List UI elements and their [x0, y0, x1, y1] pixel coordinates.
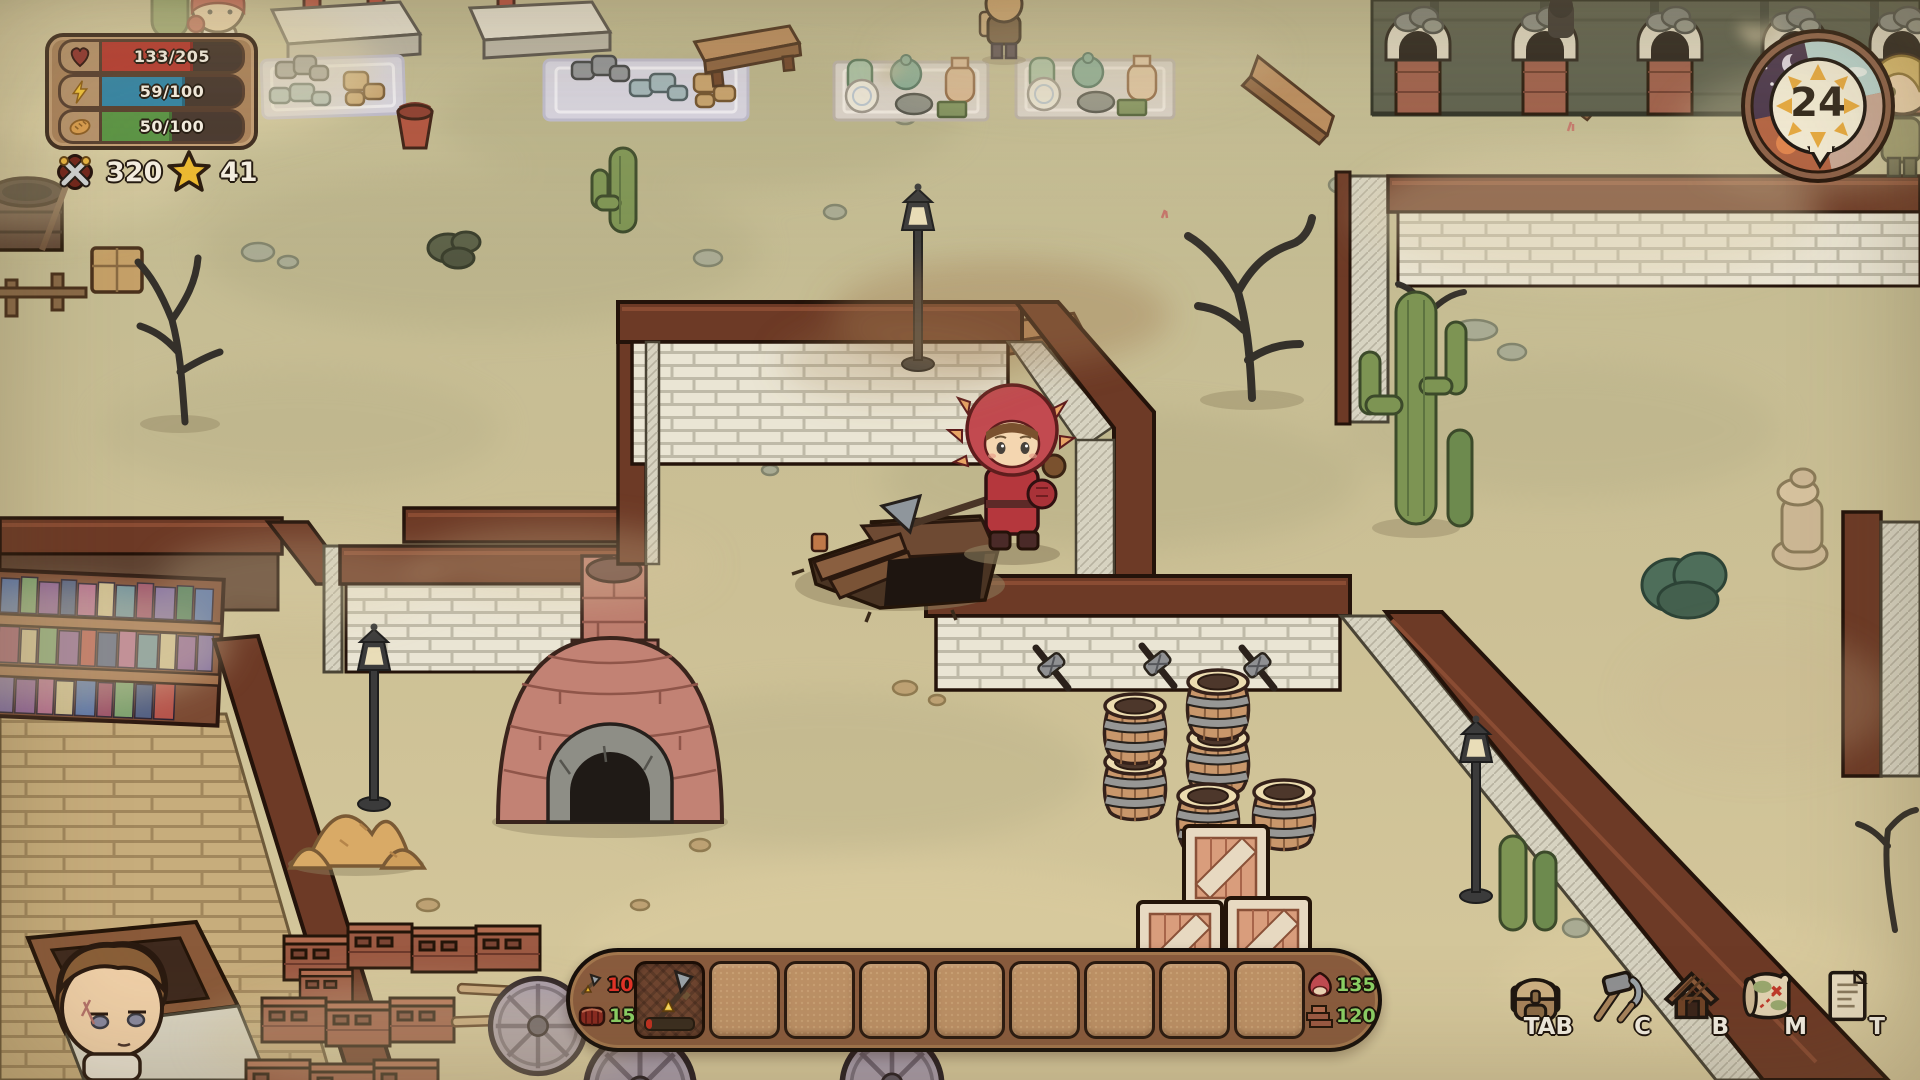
hood-value: 135: [1336, 974, 1376, 996]
satiety-bar: 50/100: [58, 109, 245, 144]
hotbar-slot-8[interactable]: [1159, 961, 1230, 1039]
hood-counter: 135: [1305, 972, 1376, 998]
heart-icon: [61, 42, 102, 71]
hotbar-slot-6[interactable]: [1009, 961, 1080, 1039]
combat-power-counter: 320: [52, 146, 162, 198]
favor-counter: 41: [166, 146, 258, 198]
energy-value: 59/100: [102, 77, 242, 106]
hotbar[interactable]: 10 150: [566, 948, 1382, 1052]
crossed-swords-icon: [52, 149, 98, 195]
hotbar-slot-5[interactable]: [934, 961, 1005, 1039]
spear-icon: [578, 972, 604, 998]
hotbar-slots: [634, 961, 1305, 1039]
crafting-key-label: C: [1634, 1014, 1651, 1040]
bricks-counter: 120: [1305, 1003, 1376, 1029]
shortcut-bar: TAB C B: [1506, 966, 1918, 1054]
favor-value: 41: [220, 157, 258, 188]
bread-icon: [61, 112, 102, 141]
hotbar-slot-1-selected[interactable]: [634, 961, 705, 1039]
health-bar: 133/205: [58, 39, 245, 74]
spear-ammo-counter: 10: [578, 972, 634, 998]
stats-panel: 133/205 59/100 50/100: [45, 33, 258, 150]
tasks-button[interactable]: T: [1818, 966, 1877, 1042]
game-viewport: 133/205 59/100 50/100 320 41: [0, 0, 1920, 1080]
bucket: [398, 104, 432, 148]
inventory-key-label: TAB: [1524, 1014, 1573, 1040]
day-number: 24: [1740, 28, 1896, 184]
day-counter: 24: [1740, 28, 1896, 184]
durability-bar: [644, 1017, 695, 1031]
red-hood-icon: [1307, 972, 1333, 998]
crafting-button[interactable]: C: [1584, 966, 1643, 1042]
map-key-label: M: [1784, 1014, 1807, 1040]
lightning-icon: [61, 77, 102, 106]
hotbar-left-counters: 10 150: [570, 972, 634, 1029]
hotbar-right-counters: 135 120: [1305, 972, 1388, 1029]
inventory-button[interactable]: TAB: [1506, 966, 1565, 1042]
hotbar-slot-3[interactable]: [784, 961, 855, 1039]
bedroll-counter: 150: [578, 1003, 634, 1029]
hotbar-slot-2[interactable]: [709, 961, 780, 1039]
hotbar-slot-7[interactable]: [1084, 961, 1155, 1039]
wood-box: [92, 248, 142, 292]
hotbar-slot-9[interactable]: [1234, 961, 1305, 1039]
bricks-value: 120: [1336, 1005, 1376, 1027]
health-value: 133/205: [102, 42, 242, 71]
map-button[interactable]: M: [1740, 966, 1799, 1042]
satiety-value: 50/100: [102, 112, 242, 141]
game-world: [0, 0, 1920, 1080]
building-button[interactable]: B: [1662, 966, 1721, 1042]
hotbar-slot-4[interactable]: [859, 961, 930, 1039]
combat-power-value: 320: [106, 157, 162, 188]
star-icon: [166, 149, 212, 195]
building-key-label: B: [1711, 1014, 1729, 1040]
bricks-icon: [1305, 1003, 1333, 1029]
spear-ammo-value: 10: [607, 974, 633, 996]
tasks-key-label: T: [1869, 1014, 1885, 1040]
energy-bar: 59/100: [58, 74, 245, 109]
bedroll-icon: [578, 1003, 606, 1029]
npc-silhouette: [1548, 0, 1574, 38]
